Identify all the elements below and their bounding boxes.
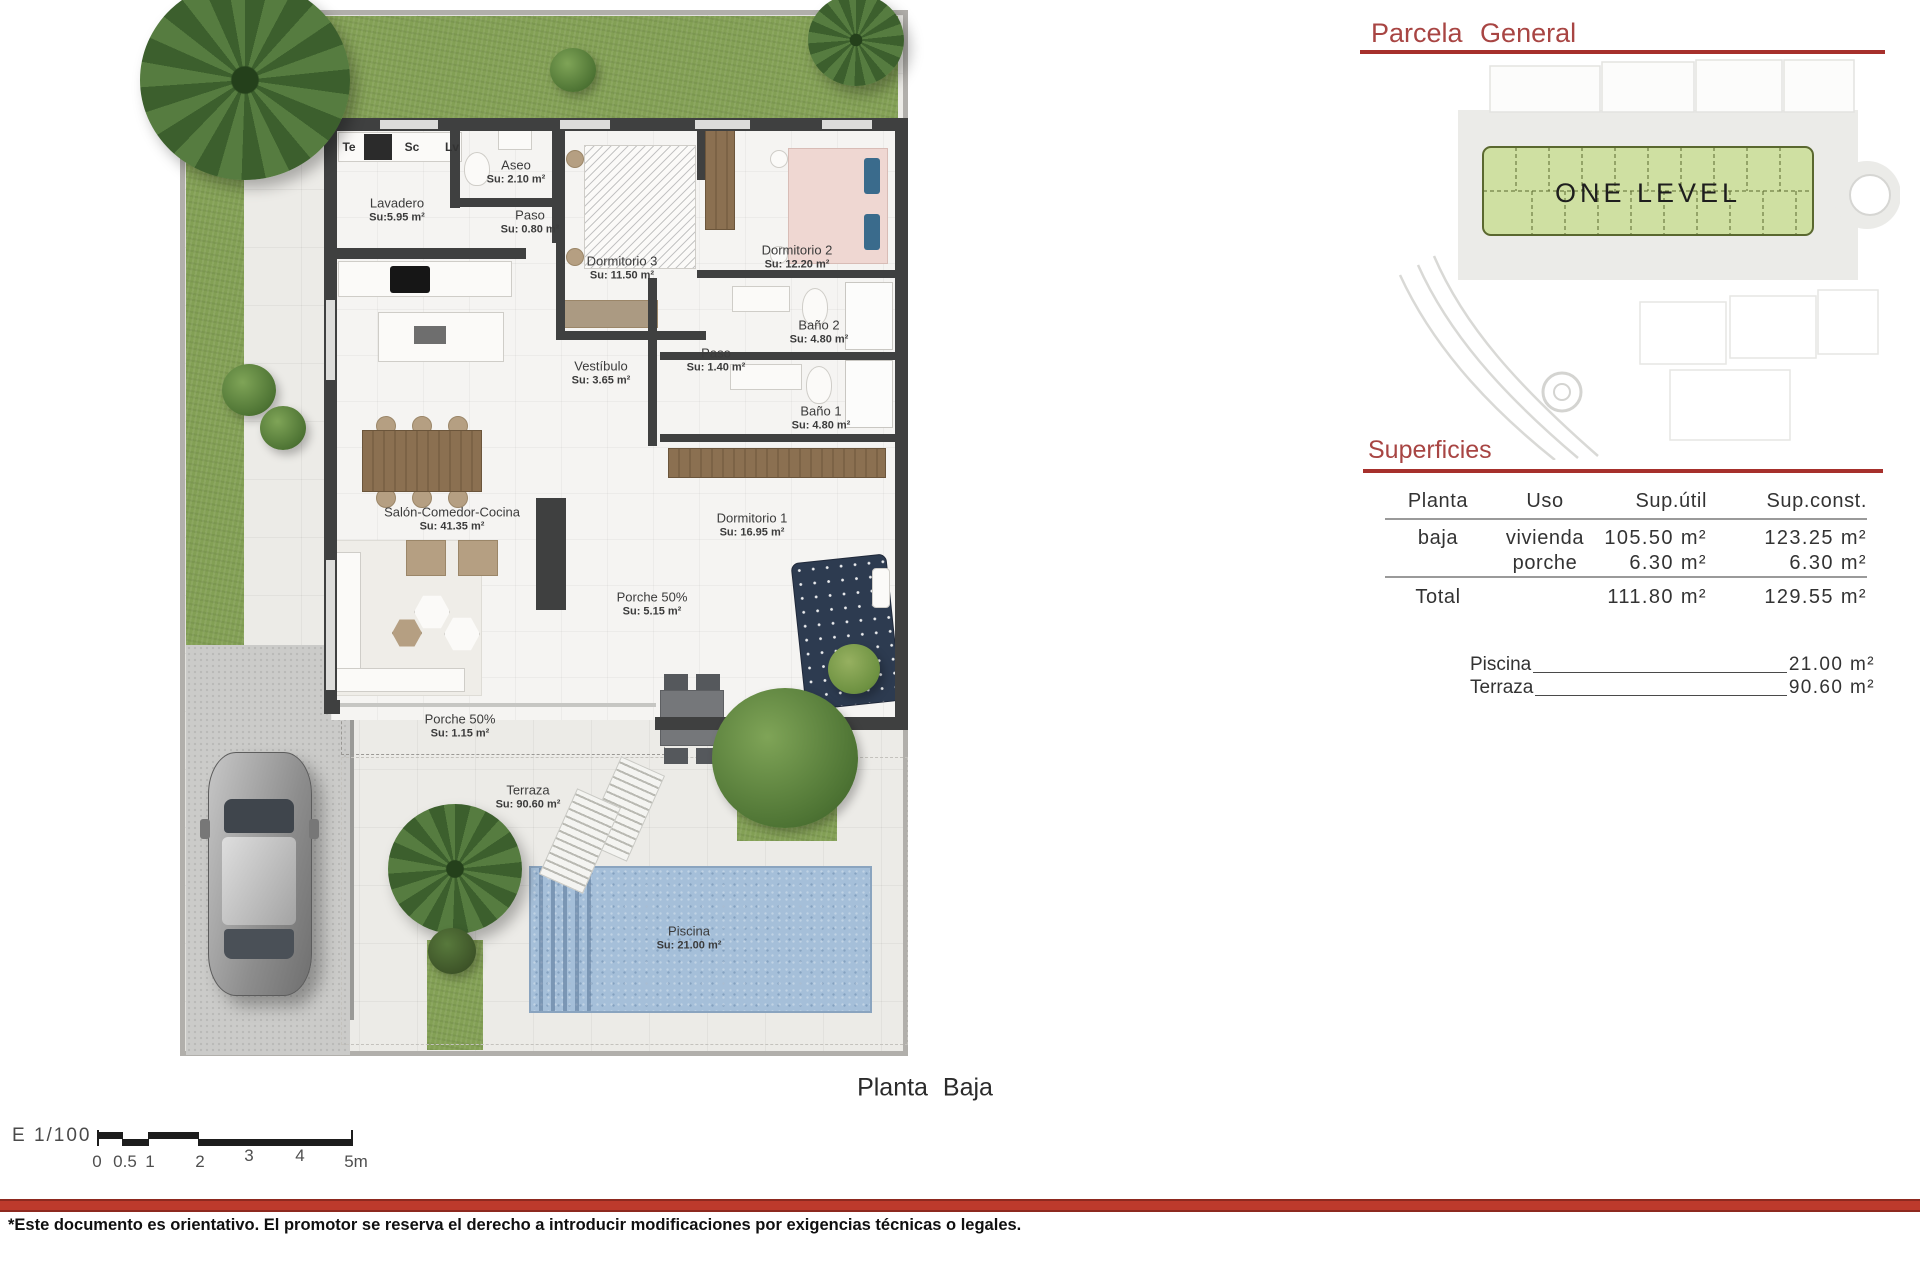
room-name: Porche 50% [425,713,496,728]
plot-outline [1784,60,1854,112]
patio-chair [664,674,688,690]
extra-value: 90.60 m² [1789,677,1875,699]
room-label-terraza: Terraza Su: 90.60 m² [496,784,561,811]
superficies-title: Superficies [1368,436,1492,465]
flower-bush [828,644,880,694]
col-header-planta: Planta [1398,490,1478,513]
room-label-piscina: Piscina Su: 21.00 m² [657,925,722,952]
bed-dorm3 [584,145,696,269]
room-name: Salón-Comedor-Cocina [384,506,520,521]
room-label-paso1: Paso Su: 0.80 m² [501,209,560,236]
table-rule [1385,518,1867,520]
plot-outline [1696,60,1782,112]
car [208,752,312,996]
plot-outline [1818,290,1878,354]
appliance-label-te: Te [342,140,355,154]
window [695,120,750,129]
extra-row-piscina: Piscina 21.00 m² [1470,653,1875,676]
cell-total-util: 111.80 m² [1607,586,1707,609]
footer-disclaimer: *Este documento es orientativo. El promo… [8,1216,1021,1235]
room-name: Paso [687,347,746,362]
cell-uso: porche [1495,552,1595,575]
room-area: Su:5.95 m² [369,211,425,223]
cell-sup-util: 105.50 m² [1604,527,1707,550]
cell-sup-const: 123.25 m² [1764,527,1867,550]
culdesac [1850,175,1890,215]
armchair [458,540,498,576]
room-name: Baño 1 [792,405,851,420]
extra-value: 21.00 m² [1789,654,1875,676]
one-level-label: ONE LEVEL [1555,178,1741,208]
extra-label: Piscina [1470,654,1531,676]
car-windshield [224,799,294,833]
wall [556,331,706,340]
wall [895,118,908,730]
pool-step [563,868,567,1011]
room-name: Vestíbulo [572,360,631,375]
toilet-bano1 [806,366,832,404]
sink-bano2 [732,286,790,312]
superficies-underline [1363,469,1883,473]
room-area: Su: 21.00 m² [657,939,722,951]
footer-red-bar [0,1199,1920,1212]
room-area: Su: 4.80 m² [792,419,851,431]
plot-outline [1640,302,1726,364]
scale-tick: 2 [195,1152,204,1172]
scale-tick: 0.5 [113,1152,137,1172]
appliance-label-sc: Sc [405,140,420,154]
cell-sup-const: 6.30 m² [1789,552,1867,575]
room-label-lavadero: Lavadero Su:5.95 m² [369,197,425,224]
cell-uso: vivienda [1495,527,1595,550]
patio-chair [696,674,720,690]
shower-bano2 [845,282,893,350]
laundry-counter [338,132,462,162]
cooktop [390,266,430,293]
large-tree [712,688,858,828]
room-area: Su: 41.35 m² [384,520,520,532]
road-curve [1400,275,1555,460]
room-name: Baño 2 [790,319,849,334]
shrub [222,364,276,416]
room-label-salon: Salón-Comedor-Cocina Su: 41.35 m² [384,506,520,533]
car-rear-window [224,929,294,959]
leader-line [1535,695,1786,696]
window [822,120,872,129]
room-area: Su: 3.65 m² [572,374,631,386]
sofa [333,552,361,684]
scale-segment [97,1132,123,1139]
room-name: Lavadero [369,197,425,212]
room-name: Terraza [496,784,561,799]
scale-tick: 3 [244,1146,253,1166]
car-mirror [200,819,210,839]
pool-step [539,868,543,1011]
porch-glazing [340,703,656,707]
room-name: Porche 50% [617,591,688,606]
plan-title: Planta Baja [857,1074,993,1103]
room-name: Paso [501,209,560,224]
wall [648,278,657,446]
scale-tick-mark [351,1130,353,1146]
site-plan: ONE LEVEL [1340,40,1900,460]
extra-label: Terraza [1470,677,1533,699]
scale-label: E 1/100 [12,1125,92,1147]
room-area: Su: 12.20 m² [762,258,833,270]
room-name: Aseo [487,159,546,174]
room-area: Su: 5.15 m² [617,605,688,617]
room-area: Su: 1.40 m² [687,361,746,373]
room-area: Su: 11.50 m² [587,269,658,281]
pillow [864,214,880,250]
plot-outline [1602,62,1694,112]
scale-segment [148,1132,199,1139]
extra-row-terraza: Terraza 90.60 m² [1470,676,1875,699]
shower-bano1 [845,360,893,428]
washer [364,134,392,160]
pillow [872,568,890,608]
room-area: Su: 2.10 m² [487,173,546,185]
one-level-band: ONE LEVEL [1483,147,1813,235]
room-label-bano1: Baño 1 Su: 4.80 m² [792,405,851,432]
nightstand [566,150,584,168]
cell-sup-util: 6.30 m² [1629,552,1707,575]
scale-tick: 0 [92,1152,101,1172]
window [326,560,335,690]
scale-tick: 4 [295,1146,304,1166]
window [380,120,438,129]
appliance-label-lv: Lv [445,140,459,154]
plot-outline [1670,370,1790,440]
bench-dorm3 [562,300,658,328]
wall [336,248,526,259]
leader-line [1533,672,1787,673]
col-header-uso: Uso [1495,490,1595,513]
cell-total-const: 129.55 m² [1764,586,1867,609]
island-sink [414,326,446,344]
patio-chair [664,748,688,764]
col-header-sup-util: Sup.útil [1635,490,1707,513]
room-area: Su: 4.80 m² [790,333,849,345]
shrub [550,48,596,92]
room-area: Su: 16.95 m² [717,526,788,538]
tv-wall [536,498,566,610]
site-plots-bottom [1640,290,1878,440]
window [560,120,610,129]
site-plots-top [1490,60,1854,112]
shrub [260,406,306,450]
road-curve [1418,265,1578,458]
car-roof [222,837,296,925]
room-label-vestibulo: Vestíbulo Su: 3.65 m² [572,360,631,387]
roundabout-center [1554,384,1570,400]
plot-outline [1730,296,1816,358]
scale-tick: 1 [145,1152,154,1172]
wall [450,118,460,208]
pool-step [551,868,555,1011]
room-label-dormitorio1: Dormitorio 1 Su: 16.95 m² [717,512,788,539]
scale-segment [198,1139,353,1146]
room-name: Dormitorio 2 [762,244,833,259]
room-label-aseo: Aseo Su: 2.10 m² [487,159,546,186]
wardrobe-dorm1 [668,448,886,478]
room-label-paso2: Paso Su: 1.40 m² [687,347,746,374]
wall [697,270,895,278]
dining-table [362,430,482,492]
room-area: Su: 0.80 m² [501,223,560,235]
cell-total-label: Total [1398,586,1478,609]
room-label-dormitorio2: Dormitorio 2 Su: 12.20 m² [762,244,833,271]
armchair [406,540,446,576]
wardrobe-dorm2 [705,126,735,230]
room-area: Su: 1.15 m² [425,727,496,739]
room-name: Dormitorio 1 [717,512,788,527]
wall [450,198,560,207]
palm-tree [388,804,522,934]
scale-tick: 5m [344,1152,368,1172]
col-header-sup-const: Sup.const. [1766,490,1867,513]
nightstand [770,150,788,168]
pool-step [587,868,591,1011]
page: Lavadero Su:5.95 m² Aseo Su: 2.10 m² Pas… [0,0,1920,1280]
room-name: Piscina [657,925,722,940]
room-label-dormitorio3: Dormitorio 3 Su: 11.50 m² [587,255,658,282]
plot-outline [1490,66,1600,112]
scale-segment [122,1139,149,1146]
table-rule [1385,576,1867,578]
room-label-bano2: Baño 2 Su: 4.80 m² [790,319,849,346]
shrub [428,928,476,974]
room-label-porche-bottom: Porche 50% Su: 1.15 m² [425,713,496,740]
car-mirror [309,819,319,839]
room-name: Dormitorio 3 [587,255,658,270]
window [326,300,335,380]
cell-planta: baja [1398,527,1478,550]
room-label-porche-right: Porche 50% Su: 5.15 m² [617,591,688,618]
nightstand [566,248,584,266]
pillow [864,158,880,194]
wall [324,700,340,714]
wall [660,434,895,442]
sofa [333,668,465,692]
parcela-underline [1360,50,1885,54]
room-area: Su: 90.60 m² [496,798,561,810]
parcela-title: Parcela General [1371,18,1576,49]
extras-block: Piscina 21.00 m² Terraza 90.60 m² [1470,653,1875,699]
